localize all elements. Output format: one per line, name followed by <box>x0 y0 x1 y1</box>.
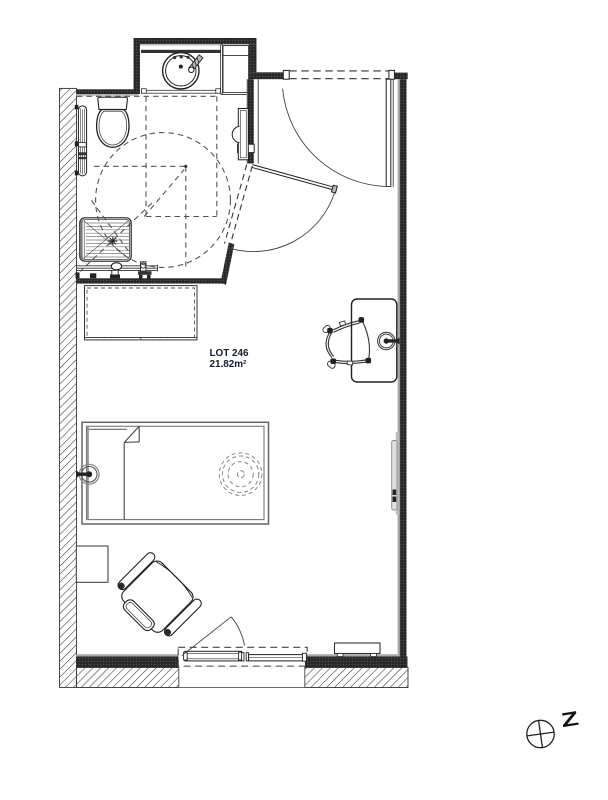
svg-text:LOT 246: LOT 246 <box>210 348 249 359</box>
svg-text:21.82m²: 21.82m² <box>210 359 247 370</box>
svg-text:Z: Z <box>560 708 581 732</box>
